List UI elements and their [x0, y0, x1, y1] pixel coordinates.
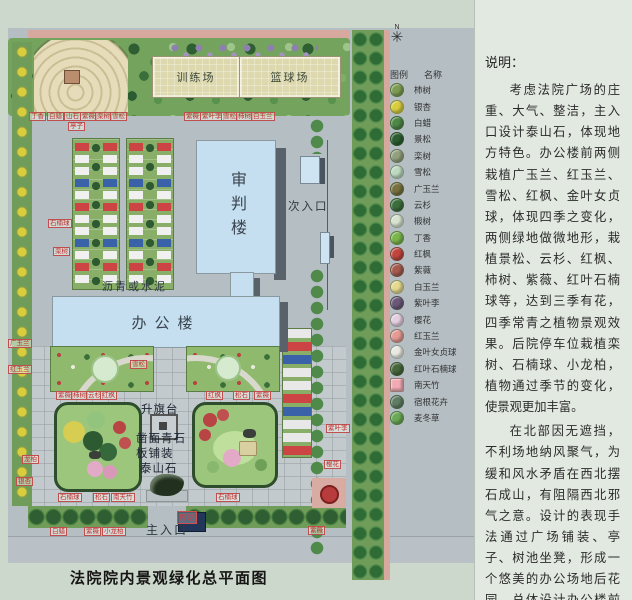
plan-sheet: 训练场 篮球场 审判楼 办公楼 — [0, 0, 632, 600]
west-ginkgo-row — [12, 42, 32, 506]
legend-name-header: 名称 — [424, 68, 442, 81]
tree-symbol — [87, 461, 103, 477]
south-hedge-east — [186, 506, 346, 528]
taishan-stone-label: 泰山石 — [140, 460, 178, 476]
north-arrow: N ✳ — [386, 24, 408, 45]
plant-symbol-icon — [390, 362, 404, 376]
legend-row: 宿根花卉 — [390, 393, 457, 409]
legend-item-label: 景松 — [414, 133, 431, 145]
legend-item-label: 金叶女贞球 — [414, 346, 457, 358]
pavilion-icon — [64, 70, 80, 84]
legend-item-label: 宿根花卉 — [414, 396, 448, 408]
rock-symbol — [89, 451, 101, 459]
legend-list: 柿树 银杏 白蜡 景松 栾树 雪松 广玉兰 云杉 — [390, 82, 457, 426]
legend-row: 樱花 — [390, 311, 457, 327]
flag-platform-core — [159, 422, 167, 430]
plant-symbol-icon — [390, 345, 404, 359]
west-garden — [54, 402, 142, 492]
office-front-bed-west — [50, 346, 154, 392]
legend-item-label: 红枫 — [414, 248, 431, 260]
legend-item-label: 丁香 — [414, 232, 431, 244]
legend-item-label: 南天竹 — [414, 379, 440, 391]
legend-item-label: 红玉兰 — [414, 330, 440, 342]
legend-row: 银杏 — [390, 98, 457, 114]
south-hedge-west — [28, 506, 148, 528]
legend-item-label: 白蜡 — [414, 117, 431, 129]
plant-symbol-icon — [390, 247, 404, 261]
plant-symbol-icon — [390, 83, 404, 97]
legend-row: 雪松 — [390, 164, 457, 180]
paving-label-line1: 凿面青石 — [136, 430, 186, 446]
basketball-court: 篮球场 — [239, 56, 341, 98]
legend-row: 紫薇 — [390, 262, 457, 278]
legend-row: 椴树 — [390, 213, 457, 229]
paving-label-line2: 板铺装 — [136, 445, 174, 461]
notes-panel: 说明： 考虑法院广场的庄重、大气、整洁，主入口设计泰山石，体现地方特色。办公楼前… — [474, 0, 632, 600]
secondary-gate — [300, 156, 320, 184]
legend-row: 广玉兰 — [390, 180, 457, 196]
trial-building: 审判楼 — [196, 140, 276, 274]
tree-symbol — [217, 409, 229, 421]
legend-row: 云杉 — [390, 197, 457, 213]
legend-item-label: 雪松 — [414, 166, 431, 178]
legend-row: 柿树 — [390, 82, 457, 98]
cedar-symbol — [91, 355, 119, 383]
tree-symbol — [103, 465, 117, 479]
south-road — [8, 536, 474, 563]
legend-item-label: 紫薇 — [414, 264, 431, 276]
trial-building-label: 审判楼 — [224, 171, 248, 243]
office-front-bed-east — [186, 346, 280, 392]
legend-item-label: 椴树 — [414, 215, 431, 227]
parked-cars — [75, 143, 89, 285]
legend-item-label: 樱花 — [414, 314, 431, 326]
legend-row: 麦冬草 — [390, 410, 457, 426]
tree-symbol — [119, 437, 131, 449]
rock-symbol — [243, 429, 256, 438]
legend-item-label: 广玉兰 — [414, 183, 440, 195]
seat-pavilion-symbol — [239, 441, 257, 456]
parking-strip-west-1 — [72, 138, 120, 290]
notes-paragraph: 在北部因无遮挡，不利场地纳风聚气，为缓和风水矛盾在西北摆石成山，有阻隔西北邪气之… — [485, 421, 620, 600]
legend-item-label: 白玉兰 — [414, 281, 440, 293]
tree-symbol — [255, 459, 267, 471]
plant-symbol-icon — [390, 100, 404, 114]
basketball-court-label: 篮球场 — [271, 69, 310, 85]
legend-item-label: 麦冬草 — [414, 412, 440, 424]
plant-symbol-icon — [390, 182, 404, 196]
plant-symbol-icon — [390, 198, 404, 212]
parked-cars — [129, 143, 143, 285]
legend-item-label: 栾树 — [414, 150, 431, 162]
plant-symbol-icon — [390, 214, 404, 228]
east-roadside-trees — [352, 30, 384, 580]
training-field-label: 训练场 — [177, 69, 216, 85]
legend-row: 白玉兰 — [390, 279, 457, 295]
asphalt-label: 沥青或水泥 — [102, 278, 167, 294]
plant-symbol-icon — [390, 378, 404, 392]
parked-cars — [157, 143, 171, 285]
plant-symbol-icon — [390, 231, 404, 245]
parking-trees — [142, 139, 158, 289]
drawing-title: 法院院内景观绿化总平面图 — [70, 567, 268, 588]
training-field: 训练场 — [152, 56, 240, 98]
plant-symbol-icon — [390, 149, 404, 163]
plant-symbol-icon — [390, 165, 404, 179]
east-boundary-fence — [327, 140, 328, 310]
plant-symbol-icon — [390, 116, 404, 130]
parked-cars — [103, 143, 117, 285]
tree-symbol — [207, 461, 219, 473]
inner-tree-row — [308, 118, 326, 154]
legend-row: 金叶女贞球 — [390, 344, 457, 360]
legend-row: 红枫 — [390, 246, 457, 262]
notes-paragraph: 考虑法院广场的庄重、大气、整洁，主入口设计泰山石，体现地方特色。办公楼前两侧栽植… — [485, 80, 620, 418]
legend-item-label: 紫叶李 — [414, 297, 440, 309]
plant-symbol-icon — [390, 411, 404, 425]
parking-trees — [88, 139, 104, 289]
tree-symbol — [203, 413, 217, 427]
plant-symbol-icon — [390, 296, 404, 310]
legend-row: 红叶石楠球 — [390, 361, 457, 377]
pavilion-plaza — [34, 40, 128, 112]
cedar-symbol — [215, 355, 241, 381]
legend-item-label: 银杏 — [414, 101, 431, 113]
legend-row: 红玉兰 — [390, 328, 457, 344]
parking-strip-west-2 — [126, 138, 174, 290]
office-building: 办公楼 — [52, 296, 280, 348]
legend-symbol-header: 图例 — [390, 68, 418, 81]
tree-symbol — [87, 411, 105, 429]
plant-symbol-icon — [390, 263, 404, 277]
notes-heading: 说明： — [485, 52, 620, 71]
legend-header: 图例 名称 — [390, 68, 442, 81]
legend-row: 紫叶李 — [390, 295, 457, 311]
compass-icon: ✳ — [386, 31, 408, 45]
flag-platform-label: 升旗台 — [141, 401, 179, 417]
legend-item-label: 云杉 — [414, 199, 431, 211]
plant-symbol-icon — [390, 329, 404, 343]
tree-symbol — [99, 443, 117, 461]
legend-row: 白蜡 — [390, 115, 457, 131]
plant-symbol-icon — [390, 395, 404, 409]
gatehouse-label: 传达 — [177, 511, 197, 524]
legend-item-label: 红叶石楠球 — [414, 363, 457, 375]
east-garden — [192, 402, 278, 488]
plaza-terraces — [34, 40, 128, 112]
tree-symbol — [63, 421, 85, 443]
office-building-label: 办公楼 — [131, 312, 200, 333]
crape-myrtle-symbol — [320, 485, 339, 504]
plant-symbol-icon — [390, 313, 404, 327]
tree-symbol — [113, 421, 126, 434]
secondary-entrance-label: 次入口 — [288, 198, 329, 214]
tree-symbol — [199, 429, 211, 441]
secondary-gate-south — [320, 232, 330, 264]
legend-item-label: 柿树 — [414, 84, 431, 96]
legend-row: 景松 — [390, 131, 457, 147]
plant-symbol-icon — [390, 132, 404, 146]
legend-row: 栾树 — [390, 148, 457, 164]
plant-symbol-icon — [390, 280, 404, 294]
legend-row: 丁香 — [390, 230, 457, 246]
legend-row: 南天竹 — [390, 377, 457, 393]
